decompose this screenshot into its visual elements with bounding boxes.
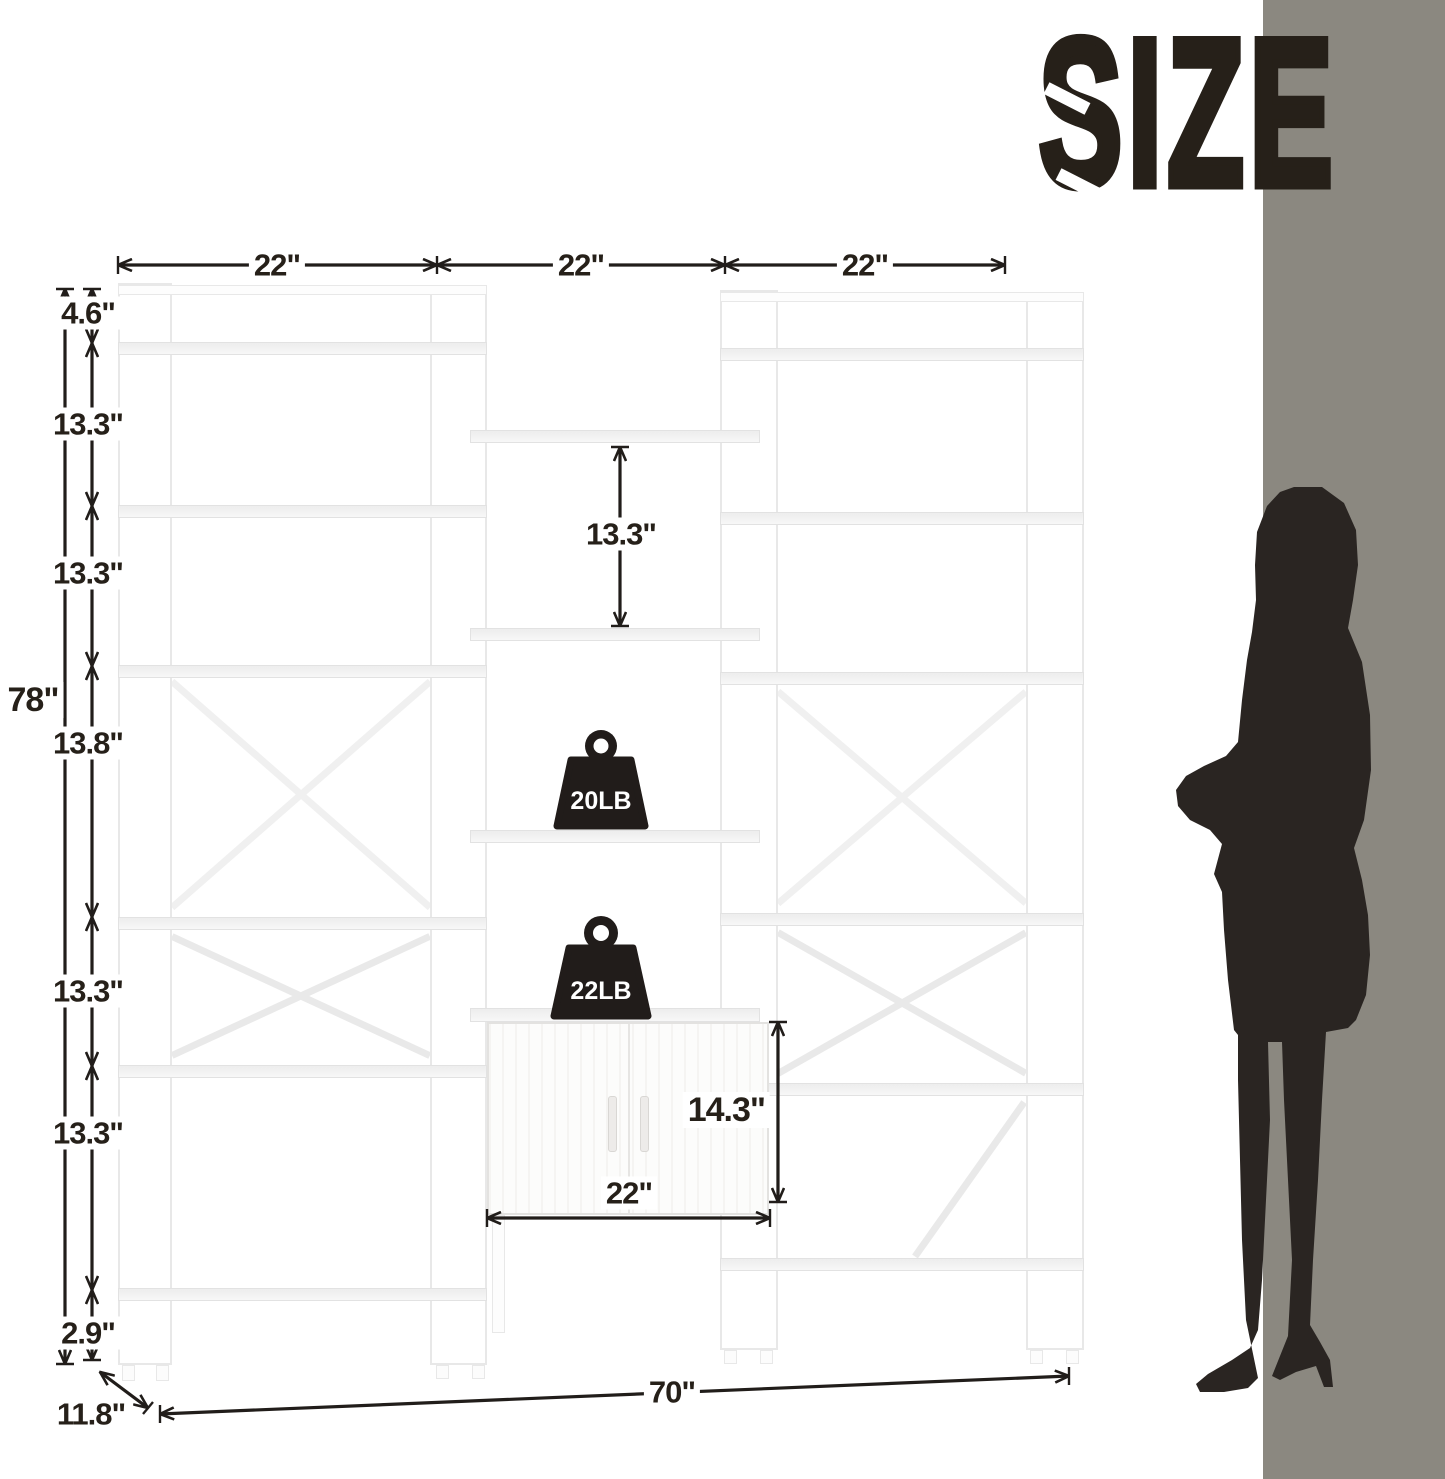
dim-label-chain-3: 13.3" (48, 557, 128, 590)
dim-label-chain-4: 13.8" (48, 727, 128, 760)
dim-label-chain-5: 13.3" (48, 975, 128, 1008)
dim-label-chain-2: 13.3" (48, 408, 128, 441)
dim-label-cabinet-width: 22" (601, 1177, 657, 1210)
dim-label-chain-7: 2.9" (56, 1317, 120, 1350)
dimension-lines (0, 0, 1445, 1479)
dim-label-depth: 11.8" (52, 1398, 130, 1431)
dim-label-cabinet-height: 14.3" (683, 1092, 770, 1128)
dim-label-chain-1: 4.6" (56, 297, 120, 330)
dim-label-top-width-1: 22" (249, 249, 305, 282)
shelf-capacity-label: 20LB (570, 787, 631, 815)
dim-overall-width (160, 1376, 1069, 1414)
dim-label-overall-height: 78" (3, 682, 64, 718)
cabinet-capacity-label: 22LB (570, 977, 631, 1005)
dim-label-top-width-2: 22" (553, 249, 609, 282)
weight-22lb-icon: 22LB (549, 912, 653, 1022)
dim-label-middle-gap: 13.3" (581, 518, 661, 551)
dim-label-chain-6: 13.3" (48, 1117, 128, 1150)
dim-label-overall-width: 70" (644, 1376, 700, 1409)
weight-20lb-icon: 20LB (552, 726, 650, 832)
size-diagram: SIZE (0, 0, 1445, 1479)
dim-label-top-width-3: 22" (837, 249, 893, 282)
